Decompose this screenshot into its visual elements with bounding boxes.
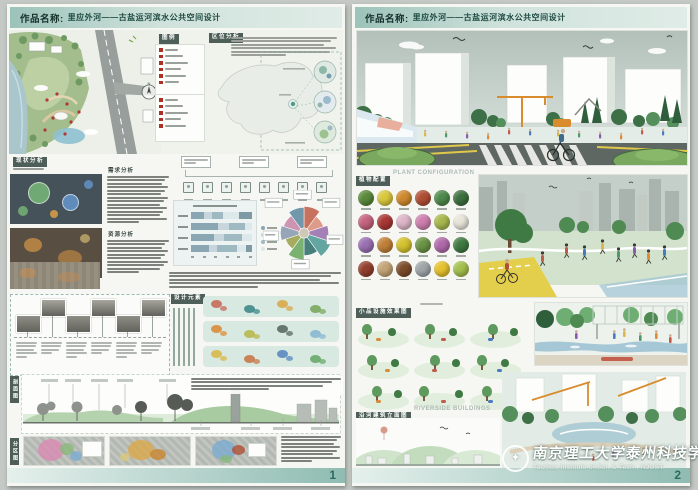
- vignette-illustration: [356, 352, 411, 381]
- plant-photo: [432, 261, 451, 281]
- top-band: N 图例 区位分析: [9, 30, 343, 154]
- work-title: 里应外河——古盐运河滨水公共空间设计: [413, 12, 566, 23]
- analysis-map-green: [10, 174, 102, 224]
- zoning-paragraph: [281, 436, 341, 464]
- vertical-caption-text: [173, 308, 199, 366]
- riverside-label-en: RIVERSIDE BUILDINGS: [414, 404, 491, 412]
- section-view-label: 剖面图: [10, 376, 19, 403]
- plant-photo-grid: [356, 190, 474, 284]
- structure-node: [297, 156, 327, 168]
- legend-item: [159, 98, 202, 102]
- svg-text:N: N: [148, 81, 151, 86]
- plant-photo: [356, 190, 375, 210]
- zoning-label: 分区图: [10, 438, 19, 465]
- legend-item: [159, 74, 202, 78]
- demand-paragraph: [107, 176, 169, 225]
- legend-item: [159, 55, 202, 59]
- design-element-strip: [203, 321, 339, 342]
- plant-photo: [394, 261, 413, 281]
- vignette-illustration: [356, 321, 411, 350]
- activity-rose-chart: [263, 190, 345, 272]
- status-caption: [13, 168, 73, 171]
- legend-title-label: 图例: [159, 34, 179, 44]
- poster-page-2: 作品名称: 里应外河——古盐运河滨水公共空间设计: [352, 4, 690, 486]
- plant-photo: [394, 214, 413, 234]
- structure-node: [239, 156, 269, 168]
- legend-item: [159, 68, 202, 72]
- university-name-cn: 南京理工大学泰州科技学院: [532, 442, 698, 463]
- zoning-plan-3: [195, 436, 277, 466]
- plaza-activity-rendering: [478, 174, 688, 298]
- plant-photo: [375, 261, 394, 281]
- plant-photo: [375, 237, 394, 257]
- legend-panel: [155, 94, 205, 142]
- plant-photo: [432, 214, 451, 234]
- master-plan-illustration: N: [9, 30, 161, 154]
- historic-photo: [66, 315, 91, 333]
- site-furniture-label: 小品设施效果图: [356, 308, 411, 318]
- vignette-illustration: [412, 352, 467, 381]
- section-paragraph: [189, 376, 343, 394]
- work-name-label: 作品名称:: [365, 11, 409, 25]
- legend-item: [159, 118, 202, 122]
- poster-header: 作品名称: 里应外河——古盐运河滨水公共空间设计: [355, 7, 687, 28]
- work-title: 里应外河——古盐运河滨水公共空间设计: [68, 12, 221, 23]
- design-element-strip: [203, 346, 339, 367]
- university-logo: ✦: [502, 445, 529, 472]
- plant-photo: [413, 190, 432, 210]
- plant-photo: [451, 190, 470, 210]
- design-elements-label: 设计元素: [171, 294, 205, 304]
- demand-analysis-heading: 需求分析: [108, 166, 134, 174]
- plant-config-label: 植物配置: [356, 176, 390, 186]
- historic-photo: [91, 299, 116, 317]
- work-name-label: 作品名称:: [20, 11, 64, 25]
- historic-photo: [16, 315, 41, 333]
- plant-photo: [375, 190, 394, 210]
- university-name-en: Taizhou Institute of Sci. & Tech., NJUST…: [533, 464, 698, 471]
- zoning-plan-1: [23, 436, 105, 466]
- legend-item: [159, 105, 202, 109]
- history-timeline: [10, 294, 170, 376]
- plant-photo: [451, 214, 470, 234]
- plant-photo: [432, 237, 451, 257]
- user-activity-bar-chart: [173, 200, 257, 266]
- design-element-strip: [203, 296, 339, 317]
- canal-pergola-rendering: [534, 302, 688, 366]
- plant-photo: [413, 214, 432, 234]
- university-watermark: ✦ 南京理工大学泰州科技学院 Taizhou Institute of Sci.…: [502, 442, 688, 472]
- plant-photo: [451, 237, 470, 257]
- facility-icon: [183, 182, 194, 193]
- zoning-plan-2: [109, 436, 191, 466]
- page-number: 1: [329, 468, 336, 482]
- legend-panel: [155, 44, 205, 98]
- legend-item: [159, 124, 202, 128]
- history-paragraph: [169, 272, 341, 289]
- historic-photo: [41, 299, 66, 317]
- plant-photo: [413, 237, 432, 257]
- poster-header: 作品名称: 里应外河——古盐运河滨水公共空间设计: [10, 7, 342, 28]
- legend-item: [159, 61, 202, 65]
- plant-photo: [375, 214, 394, 234]
- facility-icon: [221, 182, 232, 193]
- structure-node: [181, 156, 211, 168]
- plant-configuration-section: 植物配置PLANT CONFIGURATION: [356, 168, 476, 284]
- vignette-illustration: [412, 321, 467, 350]
- aerial-photo: [10, 262, 100, 289]
- plant-photo: [394, 237, 413, 257]
- legend-item: [159, 81, 202, 85]
- design-element-strips: [203, 296, 341, 371]
- legend-item: [159, 48, 202, 52]
- page-number: 2: [674, 468, 681, 482]
- facility-icon: [240, 182, 251, 193]
- plant-photo: [394, 190, 413, 210]
- poster-scan-canvas: 作品名称: 里应外河——古盐运河滨水公共空间设计: [0, 0, 698, 490]
- vignette-illustration: [468, 321, 523, 350]
- plant-photo: [432, 190, 451, 210]
- riverside-elevation-drawing: [356, 418, 500, 466]
- poster-page-1: 作品名称: 里应外河——古盐运河滨水公共空间设计: [7, 4, 345, 486]
- resource-analysis-heading: 资源分析: [108, 230, 134, 238]
- poster-footer: [7, 468, 345, 483]
- plant-config-label-en: PLANT CONFIGURATION: [393, 168, 474, 176]
- plant-photo: [451, 261, 470, 281]
- plant-photo: [413, 261, 432, 281]
- historic-photo: [116, 315, 141, 333]
- plant-photo: [356, 237, 375, 257]
- legend-item: [159, 111, 202, 115]
- street-perspective-rendering: [356, 30, 688, 166]
- plant-photo: [356, 261, 375, 281]
- status-analysis-label: 现状分析: [13, 157, 47, 167]
- resource-paragraph: [107, 240, 169, 275]
- facility-icon: [202, 182, 213, 193]
- plant-photo: [356, 214, 375, 234]
- historic-photo: [141, 299, 166, 317]
- china-location-map: [205, 50, 343, 152]
